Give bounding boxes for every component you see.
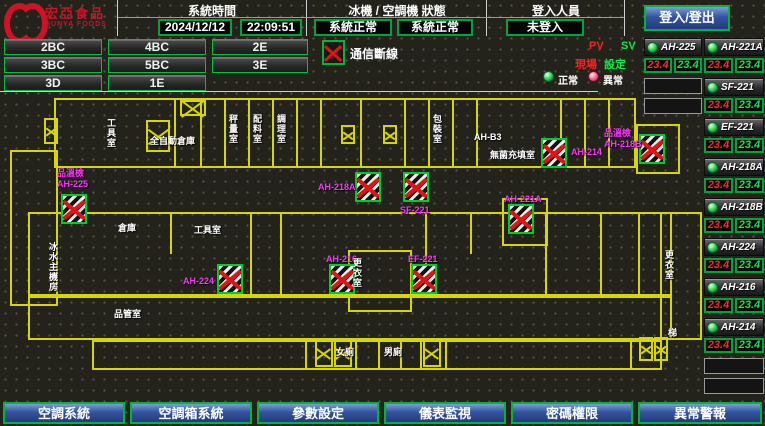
stair-icon xyxy=(315,339,333,367)
marker-label-line: 品溫檢 xyxy=(604,128,631,138)
unit-led-icon xyxy=(707,122,718,133)
equipment-marker-ah-225[interactable] xyxy=(61,194,87,224)
chiller-status-label: 冰機 / 空調機 狀態 xyxy=(308,2,486,19)
unit-button-ah-218a[interactable]: AH-218A xyxy=(704,158,764,176)
abnormal-legend-label: 異常 xyxy=(603,72,623,87)
unit-block-sf-221: SF-221 23.4 23.4 xyxy=(704,78,764,113)
pv-value: 23.4 xyxy=(644,58,672,73)
pv-value: 23.4 xyxy=(704,98,733,113)
unit-block-ef-221: EF-221 23.4 23.4 xyxy=(704,118,764,153)
empty-slot xyxy=(704,358,764,374)
unit-led-icon xyxy=(647,42,658,53)
room-label: 更衣室 xyxy=(664,250,674,280)
system-clock-value: 22:09:51 xyxy=(240,19,302,36)
pv-value: 23.4 xyxy=(704,218,733,233)
pv-value: 23.4 xyxy=(704,298,733,313)
unit-led-icon xyxy=(707,282,718,293)
equipment-marker-label: SF-221 xyxy=(400,205,430,216)
floor-button-3e[interactable]: 3E xyxy=(212,57,308,73)
unit-name: AH-214 xyxy=(721,322,755,333)
pv-value: 23.4 xyxy=(704,58,733,73)
unit-name: EF-221 xyxy=(721,122,754,133)
sv-value: 23.4 xyxy=(735,218,764,233)
wall-segment xyxy=(470,214,472,254)
sv-value: 23.4 xyxy=(735,58,764,73)
stair-icon xyxy=(341,125,355,144)
unit-block-ah-218a: AH-218A 23.4 23.4 xyxy=(704,158,764,193)
equipment-marker-label: AH-214 xyxy=(571,147,602,158)
stair-icon xyxy=(654,337,668,361)
wall-segment xyxy=(272,100,274,166)
unit-name: AH-216 xyxy=(721,282,755,293)
nav-button-password-auth[interactable]: 密碼權限 xyxy=(511,402,633,424)
equipment-marker-ah-218a[interactable] xyxy=(355,172,381,202)
room-label: 更衣室 xyxy=(352,258,362,288)
equipment-marker-ah-224[interactable] xyxy=(217,264,243,294)
elevator-icon xyxy=(180,100,206,116)
equipment-marker-ah-214[interactable] xyxy=(541,138,567,168)
unit-block-ah-221a: AH-221A 23.4 23.4 xyxy=(704,38,764,73)
unit-button-ah-214[interactable]: AH-214 xyxy=(704,318,764,336)
pv-value: 23.4 xyxy=(704,138,733,153)
logo-text-en: HUNYA FOODS xyxy=(45,21,107,29)
wall-segment xyxy=(445,342,447,368)
wall-segment xyxy=(355,342,357,368)
room-label: 包裝室 xyxy=(432,114,442,144)
marker-label-line: AH-225 xyxy=(57,179,88,189)
equipment-marker-ah-221a[interactable] xyxy=(508,204,534,234)
wall-segment xyxy=(280,214,282,294)
nav-button-meter-monitor[interactable]: 儀表監視 xyxy=(384,402,506,424)
unit-name: AH-218B xyxy=(721,202,763,213)
unit-button-ah-218b[interactable]: AH-218B xyxy=(704,198,764,216)
wall-segment xyxy=(305,342,307,368)
pv-desc-label: 現場 xyxy=(575,56,597,72)
unit-name: SF-221 xyxy=(721,82,754,93)
equipment-marker-label: AH-224 xyxy=(183,276,214,287)
floor-button-2bc[interactable]: 2BC xyxy=(4,39,102,55)
comm-lost-label: 通信斷線 xyxy=(350,45,398,62)
unit-button-ef-221[interactable]: EF-221 xyxy=(704,118,764,136)
room-label: 秤量室 xyxy=(228,114,238,144)
sv-value: 23.4 xyxy=(735,98,764,113)
room-label: 工具室 xyxy=(106,118,116,148)
system-time-label: 系統時間 xyxy=(118,2,306,19)
wall-segment xyxy=(638,214,640,294)
unit-block-ah-225: AH-225 23.4 23.4 xyxy=(644,38,702,73)
sv-desc-label: 設定 xyxy=(604,56,626,72)
nav-button-ahu-system[interactable]: 空調箱系統 xyxy=(130,402,252,424)
wall-segment xyxy=(600,214,602,294)
pv-value: 23.4 xyxy=(704,258,733,273)
floorplan: 品溫檢 AH-225 AH-224 AH-218A SF-221 AH-216 … xyxy=(0,92,703,398)
room-label: 冰水主機房 xyxy=(48,242,58,292)
sv-value: 23.4 xyxy=(735,338,764,353)
chiller-status-value: 系統正常 xyxy=(314,19,392,36)
wall-segment xyxy=(92,340,662,370)
unit-block-ah-218b: AH-218B 23.4 23.4 xyxy=(704,198,764,233)
nav-button-hvac-system[interactable]: 空調系統 xyxy=(3,402,125,424)
login-logout-button[interactable]: 登入/登出 xyxy=(644,5,730,31)
normal-led-icon xyxy=(543,71,554,82)
stair-icon xyxy=(44,118,58,144)
wall-segment xyxy=(630,342,632,368)
wall-segment xyxy=(428,100,430,166)
unit-led-icon xyxy=(707,162,718,173)
unit-name: AH-221A xyxy=(721,42,763,53)
floor-button-3d[interactable]: 3D xyxy=(4,75,102,91)
divider xyxy=(306,0,307,36)
abnormal-led-icon xyxy=(588,71,599,82)
unit-button-sf-221[interactable]: SF-221 xyxy=(704,78,764,96)
sv-value: 23.4 xyxy=(735,298,764,313)
wall-segment xyxy=(452,100,454,166)
room-label: 品管室 xyxy=(114,309,141,319)
sv-value: 23.4 xyxy=(735,258,764,273)
wall-segment xyxy=(404,100,406,166)
empty-slot xyxy=(704,378,764,394)
unit-name: AH-224 xyxy=(721,242,755,253)
wall-segment xyxy=(224,100,226,166)
floor-button-5bc[interactable]: 5BC xyxy=(108,57,206,73)
equipment-marker-label: EF-221 xyxy=(408,254,438,265)
marker-label-line: AH-218B xyxy=(604,139,642,149)
equipment-marker-label: AH-221A xyxy=(504,194,542,205)
divider xyxy=(486,0,487,36)
unit-led-icon xyxy=(707,42,718,53)
wall-segment xyxy=(320,100,322,166)
room-label: 全自動倉庫 xyxy=(150,136,195,146)
equipment-marker-ah-218b[interactable] xyxy=(639,134,665,164)
unit-led-icon xyxy=(707,322,718,333)
room-label: 男廁 xyxy=(384,347,402,357)
equipment-marker-label: 品溫檢 AH-225 xyxy=(57,168,88,190)
wall-segment xyxy=(248,100,250,166)
room-label: 女廁 xyxy=(336,347,354,357)
floor-button-4bc[interactable]: 4BC xyxy=(108,39,206,55)
unit-button-ah-216[interactable]: AH-216 xyxy=(704,278,764,296)
comm-lost-icon xyxy=(322,40,345,65)
sv-value: 23.4 xyxy=(735,178,764,193)
floor-button-2e[interactable]: 2E xyxy=(212,39,308,55)
nav-button-parameters[interactable]: 參數設定 xyxy=(257,402,379,424)
sv-legend-label: SV xyxy=(621,40,636,52)
normal-legend-label: 正常 xyxy=(558,72,578,87)
hmi-screen: 宏亞食品 HUNYA FOODS 系統時間 2024/12/12 22:09:5… xyxy=(0,0,765,426)
pv-value: 23.4 xyxy=(704,178,733,193)
unit-block-ah-214: AH-214 23.4 23.4 xyxy=(704,318,764,353)
room-label: 無菌充填室 xyxy=(490,150,535,160)
equipment-marker-label: AH-218A xyxy=(318,182,356,193)
logo: 宏亞食品 HUNYA FOODS xyxy=(4,3,107,33)
wall-segment xyxy=(250,214,252,294)
unit-button-ah-225[interactable]: AH-225 xyxy=(644,38,702,56)
room-label: 配料室 xyxy=(252,114,262,144)
floor-button-1e[interactable]: 1E xyxy=(108,75,206,91)
pv-legend-label: PV xyxy=(589,40,604,52)
equipment-marker-sf-221[interactable] xyxy=(403,172,429,202)
wall-segment xyxy=(545,214,547,294)
system-date-value: 2024/12/12 xyxy=(158,19,232,36)
sv-value: 23.4 xyxy=(674,58,702,73)
login-user-value: 未登入 xyxy=(506,19,584,36)
equipment-marker-ef-221[interactable] xyxy=(411,264,437,294)
unit-button-ah-224[interactable]: AH-224 xyxy=(704,238,764,256)
unit-block-ah-216: AH-216 23.4 23.4 xyxy=(704,278,764,313)
stair-icon xyxy=(383,125,397,144)
room-label: 工具室 xyxy=(194,225,221,235)
unit-block-ah-224: AH-224 23.4 23.4 xyxy=(704,238,764,273)
unit-button-ah-221a[interactable]: AH-221A xyxy=(704,38,764,56)
logo-text-zh: 宏亞食品 xyxy=(45,7,107,21)
unit-name: AH-218A xyxy=(721,162,763,173)
pv-value: 23.4 xyxy=(704,338,733,353)
stair-icon xyxy=(639,337,653,361)
room-label: AH-B3 xyxy=(474,132,502,142)
wall-segment xyxy=(420,342,422,368)
equipment-marker-label: 品溫檢 AH-218B xyxy=(604,128,642,150)
wall-segment xyxy=(360,100,362,166)
unit-name: AH-225 xyxy=(661,42,695,53)
unit-led-icon xyxy=(707,82,718,93)
wall-segment xyxy=(170,214,172,254)
room-label: 倉庫 xyxy=(118,223,136,233)
sv-value: 23.4 xyxy=(735,138,764,153)
divider xyxy=(624,0,625,36)
unit-led-icon xyxy=(707,242,718,253)
unit-led-icon xyxy=(707,202,718,213)
nav-button-alarm[interactable]: 異常警報 xyxy=(638,402,762,424)
wall-segment xyxy=(378,342,380,368)
login-user-label: 登入人員 xyxy=(488,2,624,19)
wall-segment xyxy=(296,100,298,166)
room-label: 調理室 xyxy=(276,114,286,144)
marker-label-line: 品溫檢 xyxy=(57,168,84,178)
logo-icon xyxy=(4,3,40,33)
ahu-status-value: 系統正常 xyxy=(397,19,473,36)
floor-button-3bc[interactable]: 3BC xyxy=(4,57,102,73)
stair-icon xyxy=(423,339,441,367)
room-label: 梯 xyxy=(668,328,677,338)
